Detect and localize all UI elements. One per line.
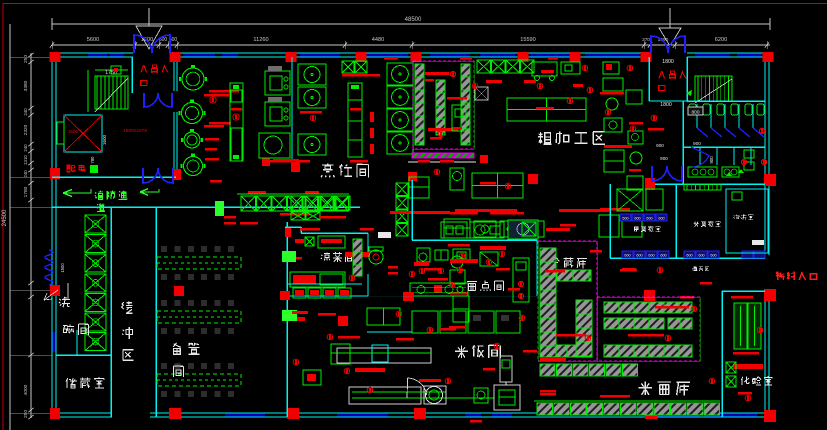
svg-text:600: 600 [698,254,704,258]
svg-text:600: 600 [634,217,640,221]
svg-text:900: 900 [693,141,701,146]
svg-text:250: 250 [23,410,29,418]
svg-text:5600: 5600 [87,37,99,43]
svg-text:600: 600 [710,254,716,258]
svg-text:1500: 1500 [60,263,65,273]
svg-text:370: 370 [642,37,650,42]
svg-text:1310: 1310 [23,155,28,165]
svg-text:900: 900 [660,156,668,161]
svg-text:3380: 3380 [23,80,29,91]
svg-text:1780: 1780 [23,186,29,197]
svg-text:4480: 4480 [372,37,384,43]
svg-text:1800: 1800 [660,102,672,108]
svg-text:800: 800 [691,110,699,116]
svg-text:600: 600 [658,217,664,221]
svg-text:1600: 1600 [102,134,107,145]
svg-text:900: 900 [656,143,664,148]
svg-text:900: 900 [709,156,714,164]
svg-text:15590: 15590 [520,37,536,43]
svg-text:240: 240 [23,108,28,116]
svg-text:240: 240 [23,144,28,152]
svg-text:600: 600 [660,254,666,258]
svg-text:48500: 48500 [405,17,422,23]
svg-text:250: 250 [23,55,29,63]
svg-text:600: 600 [622,217,628,221]
svg-text:1900x2279: 1900x2279 [123,128,147,134]
svg-text:24500: 24500 [2,209,8,226]
svg-text:600: 600 [624,254,630,258]
svg-text:4000: 4000 [23,384,29,395]
svg-text:1500: 1500 [68,129,79,134]
svg-text:600: 600 [646,217,652,221]
svg-text:1800: 1800 [662,59,674,65]
svg-text:240: 240 [23,170,28,178]
svg-text:600: 600 [636,254,642,258]
svg-text:780: 780 [90,156,95,164]
svg-text:6200: 6200 [715,37,727,43]
svg-text:600: 600 [648,254,654,258]
svg-text:11260: 11260 [253,37,268,43]
svg-text:600: 600 [686,254,692,258]
svg-text:2320: 2320 [23,124,29,135]
